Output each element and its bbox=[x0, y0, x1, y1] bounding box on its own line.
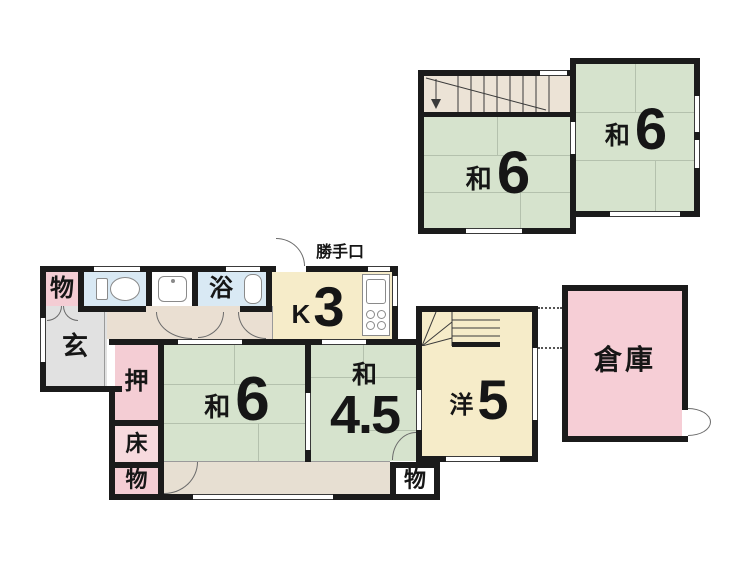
window bbox=[694, 96, 700, 132]
storage-label: 物 bbox=[115, 466, 158, 494]
label-text: 押 bbox=[125, 370, 149, 394]
label-text: 物 bbox=[50, 277, 74, 301]
window bbox=[540, 70, 567, 76]
wall bbox=[562, 285, 688, 291]
stove-icon bbox=[366, 321, 375, 330]
bathtub-icon bbox=[244, 274, 262, 304]
room-type: 和 bbox=[204, 394, 230, 420]
door-arc-icon bbox=[276, 238, 305, 266]
label-text: 玄 bbox=[62, 333, 88, 359]
window bbox=[94, 266, 140, 272]
staircase-icon bbox=[424, 76, 570, 112]
wall bbox=[416, 306, 422, 462]
door-arc-icon bbox=[688, 408, 711, 436]
room-size: 6 bbox=[235, 369, 267, 431]
room-type: 和 bbox=[605, 124, 630, 149]
staircase-icon bbox=[422, 312, 500, 346]
label-text: 倉庫 bbox=[594, 346, 656, 374]
room-label-2f-right: 和 6 bbox=[580, 100, 690, 160]
label-text: 物 bbox=[125, 469, 147, 491]
western-room-5-label: 洋 5 bbox=[428, 370, 528, 430]
japanese-room-45-label: 和 4.5 bbox=[313, 352, 416, 452]
wall bbox=[146, 266, 152, 306]
back-door-opening bbox=[276, 266, 306, 272]
stove-icon bbox=[366, 310, 375, 319]
sliding-door-opening bbox=[305, 393, 311, 450]
toilet-icon bbox=[110, 277, 140, 301]
wall bbox=[570, 58, 700, 64]
door-opening bbox=[416, 390, 422, 430]
dotted-connector bbox=[538, 307, 562, 309]
window bbox=[694, 140, 700, 168]
wall bbox=[424, 112, 570, 117]
wall bbox=[266, 266, 272, 306]
window bbox=[532, 348, 538, 420]
tatami-line bbox=[655, 160, 656, 211]
entrance-step-line bbox=[104, 306, 105, 386]
label-text: 物 bbox=[404, 469, 426, 491]
tokonoma-label: 床 bbox=[115, 426, 158, 462]
japanese-room-6-label: 和 6 bbox=[172, 368, 300, 432]
room-size: 6 bbox=[497, 143, 528, 203]
stove-icon bbox=[377, 310, 386, 319]
oshiire-label: 押 bbox=[115, 364, 158, 400]
wall bbox=[418, 70, 424, 234]
warehouse-label: 倉庫 bbox=[568, 340, 682, 380]
wall bbox=[694, 58, 700, 217]
label-text: 勝手口 bbox=[316, 245, 364, 261]
sliding-door-opening bbox=[322, 339, 366, 345]
label-text: 浴 bbox=[209, 277, 233, 301]
window bbox=[392, 276, 398, 306]
room-type: 和 bbox=[352, 363, 377, 388]
floor-edge-line bbox=[272, 306, 273, 339]
room-label-2f-left: 和 6 bbox=[432, 142, 562, 204]
label-text: 床 bbox=[125, 433, 147, 455]
stove-icon bbox=[377, 321, 386, 330]
toilet-icon bbox=[96, 278, 108, 300]
stair-landing-edge bbox=[452, 342, 500, 347]
storage-label: 物 bbox=[396, 466, 434, 494]
wall bbox=[78, 306, 146, 312]
room-size: 4.5 bbox=[330, 388, 399, 442]
window bbox=[466, 228, 522, 234]
entrance-label: 玄 bbox=[46, 326, 104, 366]
bath-label: 浴 bbox=[198, 272, 244, 306]
veranda bbox=[164, 462, 390, 494]
wall bbox=[416, 306, 538, 312]
washbasin-faucet bbox=[171, 279, 175, 283]
wall bbox=[434, 462, 440, 500]
kitchen-label: K 3 bbox=[274, 278, 360, 336]
floor-plan: 和 6 和 6 bbox=[0, 0, 750, 562]
back-door-label: 勝手口 bbox=[308, 244, 372, 262]
dotted-connector bbox=[538, 347, 562, 349]
room-size: 3 bbox=[313, 279, 342, 335]
window bbox=[446, 456, 500, 462]
room-type: K bbox=[292, 301, 311, 327]
wall bbox=[78, 266, 84, 306]
storage-label: 物 bbox=[46, 272, 78, 306]
window bbox=[610, 211, 680, 217]
wall bbox=[109, 339, 422, 345]
sliding-door-opening bbox=[570, 122, 576, 154]
sink-icon bbox=[366, 279, 386, 304]
room-type: 和 bbox=[466, 166, 492, 192]
wall bbox=[562, 436, 688, 442]
sliding-door-opening bbox=[178, 339, 242, 345]
room-size: 6 bbox=[635, 101, 665, 159]
down-arrow-icon bbox=[431, 99, 441, 109]
room-type: 洋 bbox=[449, 394, 473, 418]
wall bbox=[305, 450, 311, 462]
window bbox=[368, 266, 390, 272]
wall bbox=[305, 345, 311, 393]
room-size: 5 bbox=[477, 372, 506, 428]
window bbox=[193, 494, 333, 500]
